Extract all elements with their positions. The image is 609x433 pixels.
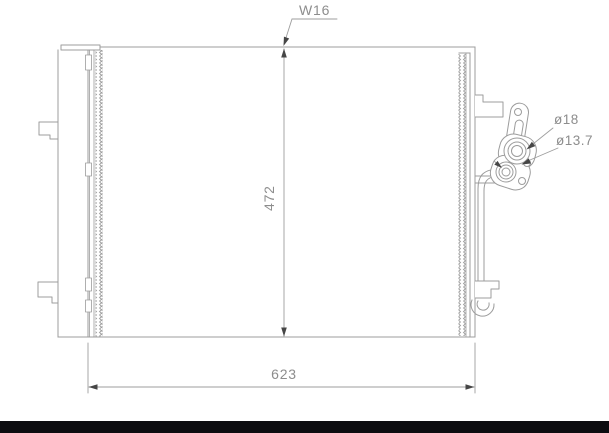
condenser-outline bbox=[38, 45, 539, 337]
side-plate-notch-4 bbox=[86, 300, 92, 312]
mounting-tab-upper bbox=[39, 122, 58, 139]
upper-right-bracket bbox=[475, 95, 503, 117]
technical-drawing: W16 472 623 ø18 ø13.7 bbox=[0, 0, 609, 433]
width-arrowhead-left bbox=[89, 384, 98, 390]
w16-arrowhead bbox=[281, 37, 289, 47]
mounting-tab-lower bbox=[38, 282, 58, 303]
left-tank-cap bbox=[61, 45, 100, 50]
plate-bolt-hole-2 bbox=[519, 178, 526, 185]
core-fins-left bbox=[96, 50, 103, 337]
pipe-hook-outer bbox=[471, 300, 494, 316]
side-plate-notch-1 bbox=[86, 55, 92, 70]
label-core-height: 472 bbox=[261, 185, 277, 211]
core-fins-right bbox=[459, 54, 466, 336]
side-plate-notch-3 bbox=[86, 278, 92, 291]
pipe-hook-inner bbox=[477, 301, 489, 310]
label-port-small-diameter: ø13.7 bbox=[556, 133, 593, 148]
label-port-large-diameter: ø18 bbox=[554, 112, 579, 127]
w16-leader-line bbox=[284, 19, 337, 44]
bottom-black-bar bbox=[0, 421, 609, 433]
height-arrowhead-top bbox=[281, 49, 287, 58]
label-overall-width: 623 bbox=[271, 366, 297, 382]
condenser-diagram-svg: W16 472 623 ø18 ø13.7 bbox=[0, 0, 609, 433]
dimension-labels: W16 472 623 ø18 ø13.7 bbox=[261, 2, 593, 382]
port-large bbox=[504, 138, 530, 164]
left-tank bbox=[38, 45, 100, 337]
height-arrowhead-bottom bbox=[281, 328, 287, 337]
label-tube-width: W16 bbox=[299, 2, 330, 18]
side-plate-notch-2 bbox=[86, 163, 92, 176]
lower-right-bracket bbox=[475, 281, 499, 298]
width-arrowhead-right bbox=[466, 384, 475, 390]
pipe-outer-wall bbox=[478, 169, 497, 293]
pipe-inner-wall bbox=[484, 176, 497, 293]
arm-bolt-hole bbox=[515, 109, 522, 116]
